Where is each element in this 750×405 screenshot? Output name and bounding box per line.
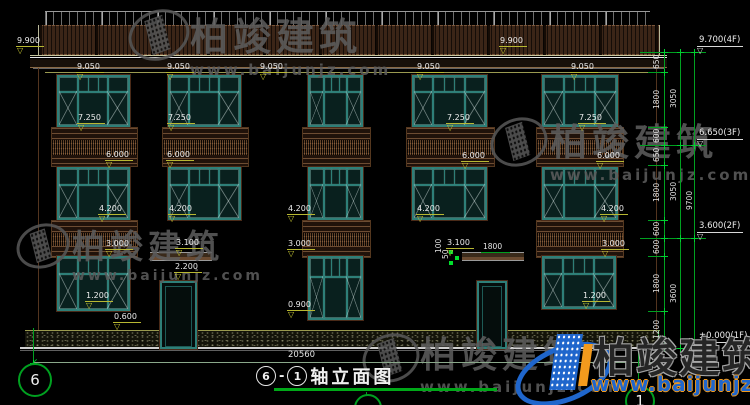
chain-segment-dim: 1800 [651, 72, 662, 127]
window-transom-mullion [331, 169, 332, 184]
window-transom-mullion [454, 169, 455, 184]
watermark-url: www.baijunjz.com [550, 166, 750, 184]
elevation-label: 3.000▽ [287, 239, 315, 257]
casement-diagonal [218, 91, 239, 125]
chain-cross-icon [661, 162, 668, 169]
window-transom-mullion [584, 258, 585, 273]
elevation-label: 6.000▽ [105, 150, 133, 168]
chain-subtotal-dim: 3050 [668, 145, 679, 238]
window-transom-mullion [98, 169, 99, 184]
level-triangle-icon: ▽ [697, 47, 743, 54]
chain-total-dim: 9700 [684, 52, 695, 348]
level-triangle-icon: ▽ [697, 140, 743, 147]
watermark-brand: 柏竣建筑 [190, 6, 391, 61]
window-transom-mullion [444, 169, 445, 184]
window-mullion [323, 77, 325, 125]
elevation-label: 4.200▽ [416, 204, 444, 222]
spandrel-band [302, 127, 371, 167]
chain-cross-icon [661, 142, 668, 149]
title-axis-start-bubble: 6 [256, 366, 276, 386]
watermark-left: 柏竣建筑 www.baijunjz.com [72, 220, 263, 284]
window-transom-mullion [454, 77, 455, 91]
watermark-building-glyph [505, 122, 530, 161]
window-transom-mullion [331, 258, 332, 276]
window-mullion [323, 258, 325, 318]
level-triangle-icon: ▽ [571, 73, 598, 80]
door-inner-frame [165, 286, 192, 347]
window-mullion [77, 169, 79, 218]
elevation-label: 7.250▽ [167, 113, 195, 131]
chain-segment-dim: 600 [651, 238, 662, 256]
chain-cross-icon [661, 49, 668, 56]
overall-width-dim: 20560 [288, 350, 315, 360]
elevation-label: 0.600▽ [113, 312, 141, 330]
level-triangle-icon: ▽ [176, 249, 203, 256]
level-triangle-icon: ▽ [106, 161, 133, 168]
elevation-label: 7.250▽ [446, 113, 474, 131]
casement-diagonal [464, 184, 485, 218]
selection-grip [455, 256, 459, 260]
level-triangle-icon: ▽ [583, 302, 610, 309]
brand-logo: 柏竣建筑 www.baijunjz.com [505, 322, 750, 405]
level-triangle-icon: ▽ [597, 162, 624, 169]
window [308, 167, 363, 220]
chain-cross-icon [661, 253, 668, 260]
level-label: 6.650(3F) [697, 128, 743, 140]
window-transom-mullion [88, 169, 89, 184]
level-triangle-icon: ▽ [697, 233, 743, 240]
axis-bubble: 6 [18, 363, 52, 397]
title-dash: - [279, 369, 284, 384]
elevation-label: 1.200▽ [85, 291, 113, 309]
chain-subtotal-dim: 3050 [668, 52, 679, 145]
elevation-label: 9.050▽ [416, 62, 444, 80]
level-triangle-icon: ▽ [169, 215, 196, 222]
chain-segment-dim: 600 [651, 220, 662, 238]
title-text: 轴立面图 [310, 363, 394, 389]
elevation-label: 9.050▽ [259, 62, 287, 80]
level-triangle-icon: ▽ [447, 124, 474, 131]
door [160, 281, 197, 349]
window-transom-mullion [339, 258, 340, 276]
chain-segment-dim: 1800 [651, 165, 662, 220]
chain-segment-dim: 650 [651, 52, 662, 72]
level-marker: 3.600(2F)▽ [697, 221, 743, 240]
window-transom-mullion [339, 77, 340, 91]
casement-diagonal [310, 91, 323, 125]
facade-left-edge [38, 68, 39, 330]
elevation-label: 9.900▽ [16, 36, 44, 54]
elevation-label: 3.000▽ [105, 239, 133, 257]
elevation-label: 1.200▽ [582, 291, 610, 309]
elevation-label: 9.050▽ [76, 62, 104, 80]
window [308, 256, 363, 320]
window-transom-mullion [199, 77, 200, 91]
casement-diagonal [59, 91, 77, 125]
logo-url-text: www.baijunjz.com [591, 372, 750, 396]
elevation-label: 6.000▽ [596, 151, 624, 169]
casement-diagonal [107, 91, 128, 125]
level-triangle-icon: ▽ [78, 124, 105, 131]
level-triangle-icon: ▽ [601, 215, 628, 222]
chain-segment-dim: 650 [651, 145, 662, 165]
level-triangle-icon: ▽ [114, 323, 141, 330]
casement-diagonal [346, 91, 361, 125]
elevation-label: 3.100▽ [175, 238, 203, 256]
chain-cross-icon [661, 308, 668, 315]
window-mullion [323, 169, 325, 218]
watermark-url: www.baijunjz.com [72, 268, 263, 284]
watermark-top: 柏竣建筑 www.baijunjz.com [190, 6, 391, 79]
elevation-label: 7.250▽ [77, 113, 105, 131]
level-triangle-icon: ▽ [500, 47, 527, 54]
elevation-label: 4.200▽ [168, 204, 196, 222]
elevation-label: 4.200▽ [600, 204, 628, 222]
selection-grip [449, 261, 453, 265]
level-triangle-icon: ▽ [175, 273, 202, 280]
title-axis-end-bubble: 1 [287, 366, 307, 386]
window-transom-mullion [209, 169, 210, 184]
window-transom-mullion [573, 258, 574, 273]
level-triangle-icon: ▽ [260, 73, 287, 80]
chain-segment-dim: 600 [651, 127, 662, 145]
chain-line-segments [664, 52, 665, 348]
chain-cross-icon [661, 124, 668, 131]
level-triangle-icon: ▽ [77, 73, 104, 80]
elevation-label: 3.000▽ [601, 239, 629, 257]
level-triangle-icon: ▽ [17, 47, 44, 54]
axis-line [33, 328, 34, 363]
drawing-title: 6 - 1 轴立面图 [256, 363, 394, 389]
window-transom-mullion [339, 169, 340, 184]
chain-line-subtotals [680, 52, 681, 348]
watermark-brand: 柏竣建筑 [72, 220, 263, 268]
level-triangle-icon: ▽ [288, 250, 315, 257]
watermark-building-glyph [30, 228, 53, 263]
level-label: 9.700(4F) [697, 35, 743, 47]
casement-diagonal [346, 184, 361, 218]
small-dim: 50 [440, 248, 451, 260]
level-triangle-icon: ▽ [288, 215, 315, 222]
window-mullion [562, 258, 564, 307]
level-triangle-icon: ▽ [167, 161, 194, 168]
level-marker: 9.700(4F)▽ [697, 35, 743, 54]
chain-segment-dim: 1800 [651, 256, 662, 311]
axis-bubble [354, 394, 382, 405]
casement-diagonal [544, 273, 562, 307]
elevation-label: 9.050▽ [166, 62, 194, 80]
level-triangle-icon: ▽ [417, 73, 444, 80]
level-triangle-icon: ▽ [288, 311, 315, 318]
title-underline [274, 388, 497, 391]
level-triangle-icon: ▽ [86, 302, 113, 309]
level-triangle-icon: ▽ [99, 215, 126, 222]
window-transom-mullion [331, 77, 332, 91]
elevation-label: 2.200▽ [174, 262, 202, 280]
level-triangle-icon: ▽ [447, 249, 474, 256]
level-triangle-icon: ▽ [167, 73, 194, 80]
window-transom-mullion [199, 169, 200, 184]
casement-diagonal [414, 91, 432, 125]
level-label: 3.600(2F) [697, 221, 743, 233]
elevation-label: 9.900▽ [499, 36, 527, 54]
window-transom-mullion [444, 77, 445, 91]
casement-diagonal [544, 184, 563, 218]
level-triangle-icon: ▽ [106, 250, 133, 257]
chain-cross-icon [661, 217, 668, 224]
linear-dim: 1800 [481, 243, 510, 253]
casement-diagonal [218, 184, 239, 218]
window [308, 75, 363, 127]
elevation-label: 4.200▽ [98, 204, 126, 222]
casement-diagonal [59, 184, 77, 218]
level-triangle-icon: ▽ [602, 250, 629, 257]
elevation-label: 4.200▽ [287, 204, 315, 222]
elevation-label: 6.000▽ [166, 150, 194, 168]
chain-cross-icon [661, 69, 668, 76]
level-marker: 6.650(3F)▽ [697, 128, 743, 147]
elevation-label: 6.000▽ [461, 151, 489, 169]
window-mullion [432, 77, 434, 125]
elevation-label: 0.900▽ [287, 300, 315, 318]
watermark-building-glyph [144, 14, 170, 55]
level-triangle-icon: ▽ [417, 215, 444, 222]
level-triangle-icon: ▽ [579, 124, 606, 131]
window-transom-mullion [209, 77, 210, 91]
level-triangle-icon: ▽ [168, 124, 195, 131]
level-triangle-icon: ▽ [462, 162, 489, 169]
elevation-label: 9.050▽ [570, 62, 598, 80]
casement-diagonal [346, 276, 361, 318]
elevation-label: 7.250▽ [578, 113, 606, 131]
chain-cross-icon [661, 235, 668, 242]
cad-elevation-drawing: 20560 6 - 1 轴立面图 柏竣建筑 www.baijunjz.com 柏… [0, 0, 750, 405]
watermark-url: www.baijunjz.com [190, 61, 391, 79]
